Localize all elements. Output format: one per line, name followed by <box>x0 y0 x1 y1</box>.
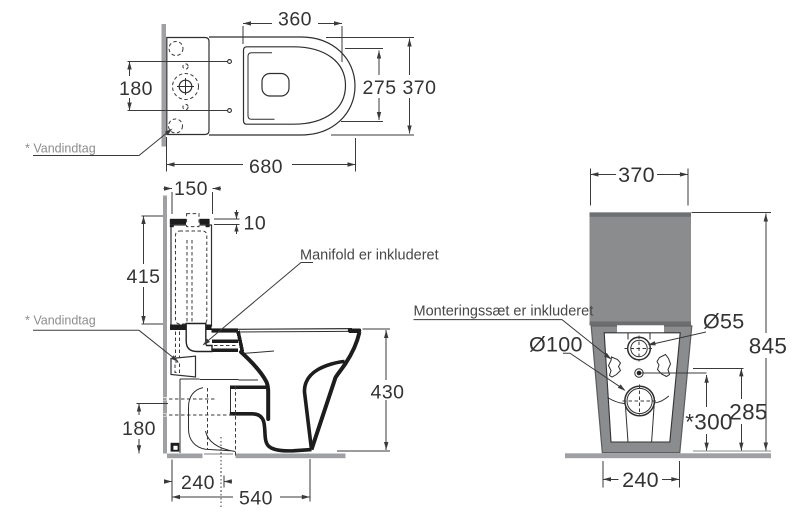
svg-text:Ø55: Ø55 <box>703 310 745 334</box>
svg-text:680: 680 <box>249 156 283 178</box>
svg-text:415: 415 <box>126 266 160 288</box>
svg-text:370: 370 <box>618 163 655 187</box>
svg-text:Monteringssæt er inkluderet: Monteringssæt er inkluderet <box>414 304 594 320</box>
svg-text:285: 285 <box>729 400 767 425</box>
svg-text:430: 430 <box>370 382 404 404</box>
svg-text:Ø100: Ø100 <box>529 333 583 357</box>
svg-text:*300: *300 <box>685 410 733 435</box>
svg-text:275 370: 275 370 <box>363 77 437 99</box>
svg-text:240: 240 <box>181 472 215 494</box>
svg-text:540: 540 <box>239 488 273 510</box>
svg-text:180: 180 <box>122 418 156 440</box>
svg-text:180: 180 <box>119 78 153 100</box>
svg-text:* Vandindtag: * Vandindtag <box>25 314 96 328</box>
svg-text:845: 845 <box>749 334 787 359</box>
svg-text:10: 10 <box>244 213 267 235</box>
svg-text:Manifold er inkluderet: Manifold er inkluderet <box>300 248 439 264</box>
svg-text:360: 360 <box>278 9 312 31</box>
svg-text:150: 150 <box>174 178 208 200</box>
svg-text:240: 240 <box>622 468 659 492</box>
svg-text:* Vandindtag: * Vandindtag <box>25 142 96 156</box>
